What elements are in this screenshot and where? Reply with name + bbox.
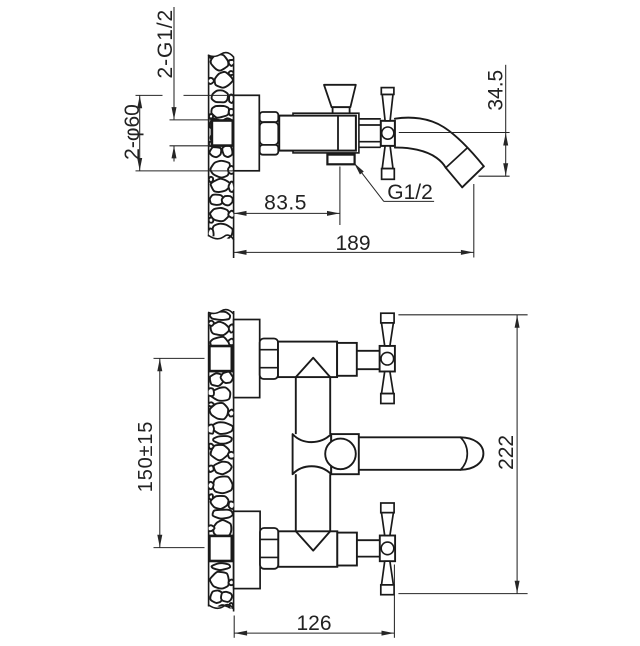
svg-text:126: 126 bbox=[296, 612, 331, 635]
svg-text:34.5: 34.5 bbox=[485, 70, 508, 111]
svg-text:189: 189 bbox=[335, 232, 370, 255]
svg-text:150±15: 150±15 bbox=[135, 421, 157, 492]
svg-text:2-φ60: 2-φ60 bbox=[121, 104, 144, 160]
svg-text:83.5: 83.5 bbox=[264, 192, 307, 215]
svg-text:2-G1/2: 2-G1/2 bbox=[154, 9, 177, 79]
svg-text:222: 222 bbox=[495, 435, 518, 470]
svg-text:G1/2: G1/2 bbox=[387, 181, 433, 204]
